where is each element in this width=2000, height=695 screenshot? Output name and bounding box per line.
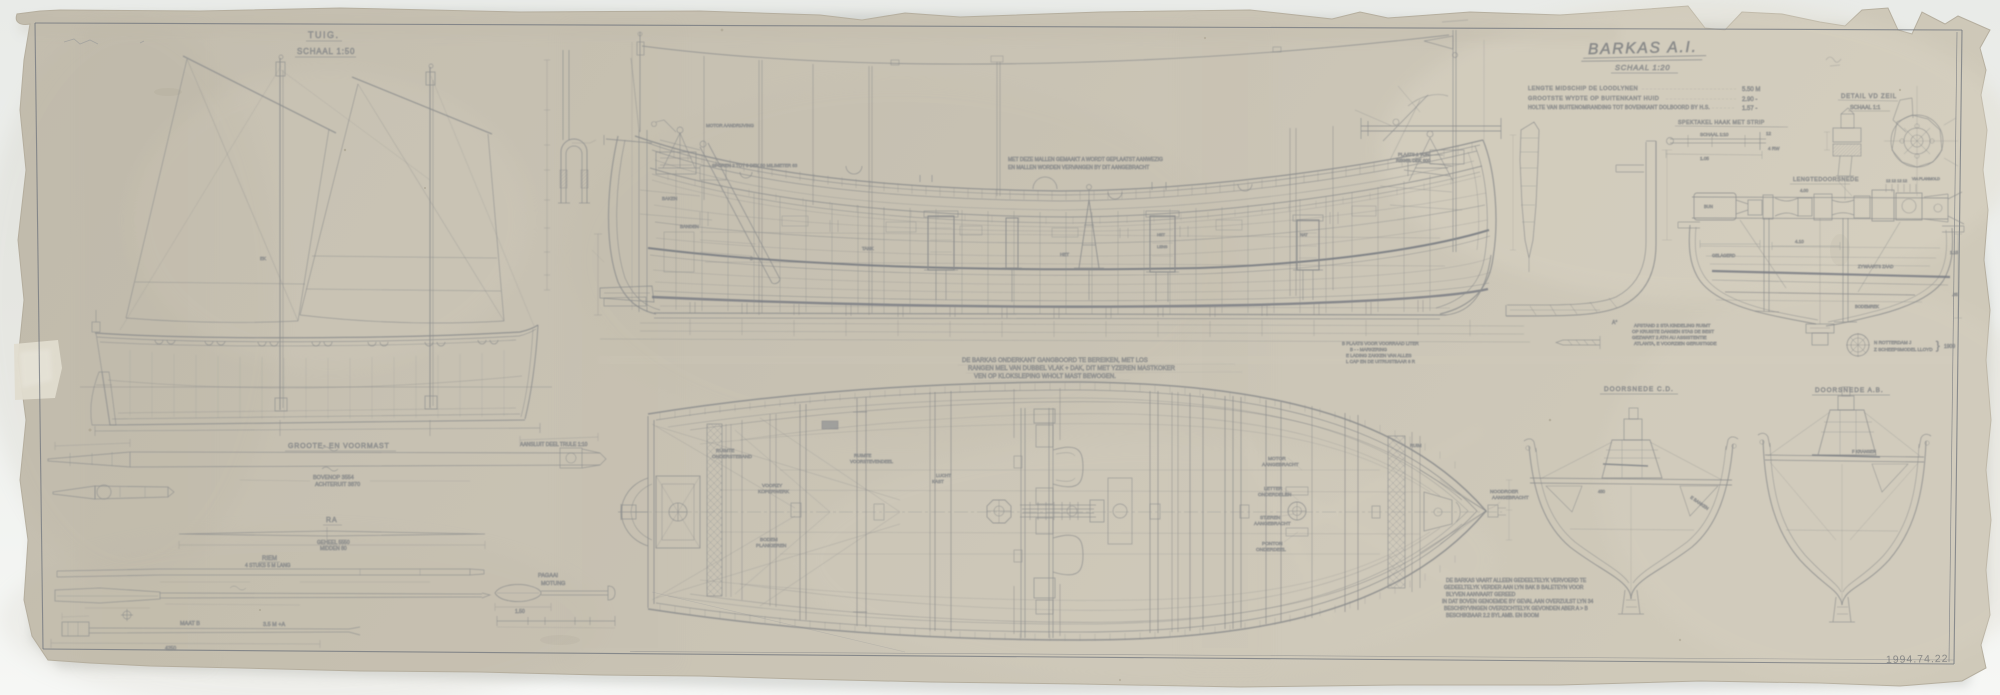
svg-text:Z SCHEEPSMODEL LLOYD: Z SCHEEPSMODEL LLOYD	[1874, 347, 1933, 352]
svg-text:ACHTERUIT 3870: ACHTERUIT 3870	[315, 482, 360, 488]
svg-text:DOORSNEDE C.D.: DOORSNEDE C.D.	[1604, 386, 1674, 393]
svg-text:ZYWAARTS ZAAD: ZYWAARTS ZAAD	[1858, 264, 1893, 269]
svg-text:ST.EREN: ST.EREN	[1260, 515, 1281, 521]
svg-text:ONDERSTEBAND: ONDERSTEBAND	[712, 454, 753, 460]
svg-text:GEZWART 2 ATH AU ASSISTENTIE: GEZWART 2 ATH AU ASSISTENTIE	[1632, 335, 1707, 340]
svg-text:LETTER: LETTER	[1264, 486, 1283, 492]
svg-text:HOLTE VAN BUITENOMRANDING TOT: HOLTE VAN BUITENOMRANDING TOT BOVENKANT …	[1528, 105, 1710, 111]
svg-text:PAGAAI: PAGAAI	[538, 573, 559, 579]
svg-text:3.5 M +A: 3.5 M +A	[263, 622, 285, 628]
svg-text:GROOTSTE WYDTE OP BUITENKANT H: GROOTSTE WYDTE OP BUITENKANT HUID	[1528, 96, 1659, 102]
svg-text:1.05: 1.05	[1700, 156, 1709, 161]
svg-text:BODEM: BODEM	[760, 537, 778, 543]
svg-text:KAST: KAST	[932, 479, 944, 484]
svg-text:AFSTAND 2 STA KINDELING RUIMT: AFSTAND 2 STA KINDELING RUIMT	[1634, 323, 1711, 328]
svg-text:2.90 -: 2.90 -	[1742, 97, 1757, 103]
svg-text:4.10: 4.10	[1795, 239, 1804, 244]
svg-text:DOORSNEDE A.B.: DOORSNEDE A.B.	[1815, 387, 1884, 394]
svg-text:AANGEBRACHT: AANGEBRACHT	[1254, 521, 1291, 527]
svg-text:RANGEN MEL VAN DUBBEL VLAK + D: RANGEN MEL VAN DUBBEL VLAK + DAK, DIT ME…	[968, 366, 1176, 372]
svg-text:NOODROER: NOODROER	[1490, 489, 1519, 495]
svg-text:GEDEELTELYK VERDER AAN LYN BAK: GEDEELTELYK VERDER AAN LYN BAK B BALETEY…	[1444, 585, 1584, 591]
svg-text:ATLANTA, E VOORZIEN GERUSTIGDE: ATLANTA, E VOORZIEN GERUSTIGDE	[1634, 341, 1717, 346]
svg-text:A°: A°	[1612, 320, 1617, 326]
svg-text:1994.74.22: 1994.74.22	[1886, 653, 1949, 666]
svg-text:DE BARKAS ONDERKANT GANGBOORD: DE BARKAS ONDERKANT GANGBOORD TE BEREIKE…	[962, 358, 1148, 364]
svg-text:PONTON: PONTON	[1262, 541, 1283, 547]
svg-text:MIDDEN 80: MIDDEN 80	[320, 546, 347, 552]
svg-text:LENGTEDOORSNEDE: LENGTEDOORSNEDE	[1793, 177, 1859, 183]
svg-text:MET DEZE MALLEN GEMAAKT A WORD: MET DEZE MALLEN GEMAAKT A WORDT GEPLAATS…	[1008, 157, 1163, 163]
svg-text:12: 12	[1766, 131, 1772, 136]
svg-text:1.15: 1.15	[1950, 250, 1959, 255]
svg-text:BOVENOP 3554: BOVENOP 3554	[313, 475, 354, 481]
svg-text:RUIMTE: RUIMTE	[854, 453, 871, 458]
svg-text:HET: HET	[1157, 232, 1166, 237]
svg-text:L CAP EN DE UITRUSTBAAR 6 R: L CAP EN DE UITRUSTBAAR 6 R	[1346, 359, 1416, 364]
svg-text:4 STUKS 5 M LANG: 4 STUKS 5 M LANG	[245, 563, 291, 569]
svg-text:PLANKIEREN: PLANKIEREN	[756, 543, 787, 549]
svg-text:BODEMREK: BODEMREK	[1855, 304, 1879, 309]
svg-text:SPEKTAKEL HAAK MET STRIP: SPEKTAKEL HAAK MET STRIP	[1678, 120, 1765, 126]
svg-text:MOTUNG: MOTUNG	[541, 581, 565, 587]
svg-text:LENS: LENS	[1157, 244, 1168, 249]
svg-text:MOTOR: MOTOR	[1268, 456, 1286, 462]
svg-text:LENGTE MIDSCHIP DE LOODLYNEN: LENGTE MIDSCHIP DE LOODLYNEN	[1528, 86, 1638, 92]
svg-text:BESCHIKBAAR 2.2 BYL AMB. EN BO: BESCHIKBAAR 2.2 BYL AMB. EN BOOM	[1446, 613, 1539, 619]
svg-text:B - - MARKERING: B - - MARKERING	[1350, 347, 1388, 352]
svg-text:IN DAT BOVEN GENOEMDE BY GEVAL: IN DAT BOVEN GENOEMDE BY GEVAL AAN OVERZ…	[1442, 599, 1593, 605]
svg-text:REGEL DEK 600: REGEL DEK 600	[1396, 158, 1431, 163]
svg-text:LUCHT: LUCHT	[936, 473, 951, 478]
svg-text:BESCHRYVINGEN OVERZICHTELYK G: BESCHRYVINGEN OVERZICHTELYK GEVONDEN ABE…	[1444, 606, 1589, 612]
svg-text:ONDERDEEL: ONDERDEEL	[1256, 547, 1286, 553]
svg-text:RIEM: RIEM	[262, 556, 277, 562]
svg-text:BAKEN: BAKEN	[662, 196, 677, 201]
svg-text:GROOTE- EN VOORMAST: GROOTE- EN VOORMAST	[288, 443, 390, 450]
svg-text:ONDERDELEN: ONDERDELEN	[1258, 492, 1292, 498]
svg-text:E LADING ZAKKEN VAN ALLES: E LADING ZAKKEN VAN ALLES	[1346, 353, 1411, 358]
svg-text:AANGEBRACHT: AANGEBRACHT	[1492, 495, 1529, 501]
svg-text:}: }	[1936, 340, 1940, 352]
svg-text:SCHAAL 1:1: SCHAAL 1:1	[1850, 105, 1880, 111]
svg-text:TANK: TANK	[862, 246, 874, 251]
svg-text:OP KRUISTE DANSEN STAS DE BEST: OP KRUISTE DANSEN STAS DE BEST	[1632, 329, 1714, 334]
svg-text:.85: .85	[1952, 292, 1958, 297]
svg-text:DE BARKAS VAART ALLEEN GEDEEL: DE BARKAS VAART ALLEEN GEDEELTELYK VERVO…	[1446, 578, 1587, 584]
svg-text:BLYVEN AANVAART GEREED: BLYVEN AANVAART GEREED	[1446, 592, 1516, 598]
svg-text:4.00: 4.00	[1800, 188, 1809, 193]
svg-text:GELAGERD: GELAGERD	[1712, 253, 1735, 258]
svg-text:MOTOR AANDRIJVING: MOTOR AANDRIJVING	[706, 123, 754, 128]
svg-text:1.50: 1.50	[515, 609, 525, 615]
svg-text:AANSLUIT DEEL TRULE 1:10: AANSLUIT DEEL TRULE 1:10	[520, 442, 588, 448]
svg-text:VIA PLANMOLD: VIA PLANMOLD	[1912, 177, 1940, 181]
svg-text:DETAIL VD ZEIL: DETAIL VD ZEIL	[1841, 94, 1897, 100]
svg-text:BARKAS A.I.: BARKAS A.I.	[1588, 39, 1698, 58]
svg-text:VOORZY: VOORZY	[762, 483, 783, 489]
svg-text:PLAATS 1 TON: PLAATS 1 TON	[1398, 152, 1429, 157]
svg-text:SPOREN 2 TOT 5 DEK 50 MILIMETE: SPOREN 2 TOT 5 DEK 50 MILIMETER 63	[712, 163, 798, 168]
svg-text:AANGEBRACHT: AANGEBRACHT	[1262, 462, 1299, 468]
svg-text:SCHAAL 1:50: SCHAAL 1:50	[297, 47, 355, 56]
svg-text:BANDEN: BANDEN	[680, 224, 699, 229]
svg-text:5.50 M: 5.50 M	[1742, 87, 1760, 93]
svg-text:SCHAAL 1:10: SCHAAL 1:10	[1700, 132, 1729, 137]
svg-text:NAT: NAT	[1300, 232, 1308, 237]
svg-text:F KRANSEN: F KRANSEN	[1852, 449, 1876, 454]
svg-text:1.57 -: 1.57 -	[1742, 106, 1757, 112]
svg-text:VEN OP KLOKSLEPING WHOLT MAST: VEN OP KLOKSLEPING WHOLT MAST BEWOGEN.	[974, 374, 1116, 380]
svg-text:EN MALLEN WORDEN VERVANGEN BY: EN MALLEN WORDEN VERVANGEN BY DIT AANGEB…	[1008, 165, 1149, 171]
svg-text:1909: 1909	[1944, 344, 1955, 350]
svg-text:SCHAAL 1:20: SCHAAL 1:20	[1615, 63, 1670, 72]
svg-text:4250: 4250	[165, 646, 176, 652]
svg-text:N ROTTERDAM J: N ROTTERDAM J	[1874, 340, 1911, 345]
svg-text:TUIG.: TUIG.	[308, 30, 340, 40]
svg-text:MAAT B: MAAT B	[180, 621, 200, 627]
svg-text:450: 450	[1598, 489, 1606, 494]
svg-text:VOORSTEVENDEEL: VOORSTEVENDEEL	[850, 459, 894, 464]
svg-text:RA: RA	[326, 517, 338, 524]
svg-text:12 12 12 12: 12 12 12 12	[1886, 178, 1908, 183]
svg-text:BUN: BUN	[1704, 204, 1713, 209]
svg-text:4 RW: 4 RW	[1768, 146, 1780, 151]
